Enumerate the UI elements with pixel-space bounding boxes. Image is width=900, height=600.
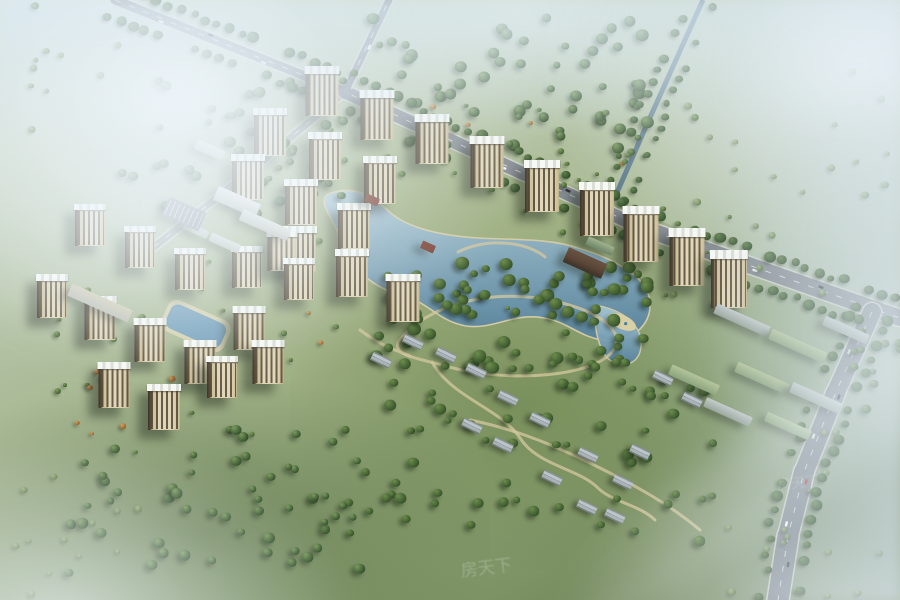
tower-shaded-side <box>711 250 717 308</box>
tower-windows <box>339 257 367 296</box>
tower-shaded-side <box>336 249 341 297</box>
park-cottage <box>370 352 392 369</box>
tower-windows <box>235 161 263 199</box>
park-cottage <box>604 508 626 525</box>
tower-roof <box>337 203 370 210</box>
park-cottage <box>576 499 598 516</box>
tower-roof <box>174 248 205 254</box>
tower-roof <box>284 179 317 186</box>
tower-shaded-side <box>624 206 630 262</box>
tower-shaded-side <box>253 340 258 384</box>
tower-shaded-side <box>306 66 311 116</box>
park-cottage <box>465 363 487 380</box>
building-layer <box>0 0 900 600</box>
residential-tower <box>175 248 205 290</box>
tower-shaded-side <box>234 306 239 350</box>
tower-roof <box>305 66 339 74</box>
residential-tower <box>338 203 370 249</box>
tower-windows <box>78 211 104 245</box>
tower-shaded-side <box>284 258 289 300</box>
greenhouse-building <box>822 316 870 345</box>
park-cottage <box>461 418 483 435</box>
tower-windows <box>673 237 703 285</box>
commercial-building <box>209 232 242 253</box>
residential-tower <box>670 228 705 286</box>
aerial-masterplan-rendering: 房天下房天下 <box>0 0 900 600</box>
tower-roof <box>470 136 504 144</box>
park-cottage <box>402 334 424 351</box>
park-cottage <box>577 447 599 464</box>
greenhouse-building <box>713 303 770 337</box>
park-cottage <box>612 474 634 491</box>
tower-roof <box>231 154 264 161</box>
tower-windows <box>102 369 129 407</box>
clubhouse <box>563 247 608 279</box>
tower-shaded-side <box>361 90 366 140</box>
tower-roof <box>335 249 368 256</box>
tower-shaded-side <box>670 228 676 286</box>
tower-windows <box>138 325 165 361</box>
residential-tower <box>207 356 237 398</box>
tower-roof <box>623 206 659 214</box>
tower-roof <box>134 318 166 325</box>
residential-tower <box>525 160 559 212</box>
red-pavilion <box>420 240 436 253</box>
residential-tower <box>135 318 166 362</box>
residential-tower <box>285 179 317 225</box>
tower-shaded-side <box>338 203 343 249</box>
tower-roof <box>124 226 155 232</box>
tower-roof <box>74 204 105 210</box>
residential-tower <box>309 132 341 180</box>
tower-roof <box>206 356 237 362</box>
tower-shaded-side <box>387 274 392 322</box>
tower-shaded-side <box>207 356 212 398</box>
tower-shaded-side <box>309 132 314 180</box>
tower-windows <box>256 347 283 383</box>
tower-roof <box>36 274 67 281</box>
tower-shaded-side <box>254 108 259 156</box>
residential-tower <box>336 249 368 297</box>
residential-tower <box>580 182 614 236</box>
tower-windows <box>715 259 746 307</box>
tower-roof <box>669 228 705 237</box>
tower-windows <box>390 282 418 321</box>
tower-roof <box>524 160 559 168</box>
tower-windows <box>178 255 204 289</box>
tower-roof <box>283 258 314 264</box>
tower-shaded-side <box>37 274 42 318</box>
greenhouse-building <box>668 364 720 395</box>
tower-windows <box>528 168 557 211</box>
park-cottage <box>541 470 563 487</box>
tower-roof <box>233 306 265 313</box>
tower-windows <box>40 281 66 317</box>
residential-tower <box>148 384 180 430</box>
tower-windows <box>627 215 657 261</box>
tower-roof <box>147 384 180 391</box>
tower-windows <box>583 191 612 235</box>
tower-windows <box>151 391 179 429</box>
tower-roof <box>710 250 747 259</box>
residential-tower <box>624 206 659 262</box>
tower-shaded-side <box>525 160 530 212</box>
park-cottage <box>435 347 457 364</box>
residential-tower <box>416 114 449 164</box>
garden-hall <box>585 236 614 256</box>
residential-tower <box>75 204 105 246</box>
park-cottage <box>629 444 651 461</box>
park-cottage <box>497 390 519 407</box>
tower-windows <box>128 233 154 267</box>
tower-roof <box>360 90 394 98</box>
residential-tower <box>99 362 130 408</box>
tower-windows <box>287 265 313 299</box>
tower-roof <box>579 182 614 190</box>
residential-tower <box>361 90 394 140</box>
greenhouse-building <box>703 397 753 426</box>
tower-windows <box>257 116 285 155</box>
tower-windows <box>309 74 337 115</box>
tower-roof <box>252 340 284 347</box>
tower-windows <box>312 140 340 179</box>
tower-roof <box>253 108 286 115</box>
tower-roof <box>98 362 130 369</box>
tower-windows <box>341 210 369 248</box>
tower-shaded-side <box>75 204 80 246</box>
tower-roof <box>363 156 396 163</box>
park-cottage <box>681 392 703 409</box>
tower-shaded-side <box>185 340 190 384</box>
tower-shaded-side <box>471 136 476 188</box>
tower-windows <box>419 122 447 163</box>
residential-tower <box>711 250 747 308</box>
tower-shaded-side <box>285 179 290 225</box>
tower-roof <box>184 340 216 347</box>
residential-tower <box>254 108 286 156</box>
park-cottage <box>529 412 551 429</box>
residential-tower <box>387 274 420 322</box>
residential-tower <box>125 226 155 268</box>
commercial-building <box>194 139 225 160</box>
residential-tower <box>37 274 67 318</box>
residential-tower <box>306 66 339 116</box>
tower-shaded-side <box>148 384 153 430</box>
tower-windows <box>474 144 502 187</box>
residential-tower <box>284 258 314 300</box>
tower-windows <box>288 186 316 224</box>
residential-tower <box>253 340 284 384</box>
greenhouse-building <box>734 362 790 395</box>
tower-windows <box>235 253 261 287</box>
tower-roof <box>386 274 420 281</box>
residential-tower <box>471 136 504 188</box>
greenhouse-building <box>764 412 812 441</box>
tower-shaded-side <box>268 231 273 271</box>
park-cottage <box>492 437 514 454</box>
tower-shaded-side <box>580 182 585 236</box>
tower-windows <box>210 363 236 397</box>
tower-windows <box>364 98 392 139</box>
tower-shaded-side <box>135 318 140 362</box>
tower-roof <box>415 114 449 122</box>
tower-shaded-side <box>99 362 104 408</box>
tower-shaded-side <box>125 226 130 268</box>
tower-roof <box>308 132 341 139</box>
tower-shaded-side <box>416 114 421 164</box>
tower-shaded-side <box>175 248 180 290</box>
commercial-building <box>239 209 291 241</box>
greenhouse-building <box>768 329 827 363</box>
greenhouse-building <box>789 382 843 414</box>
